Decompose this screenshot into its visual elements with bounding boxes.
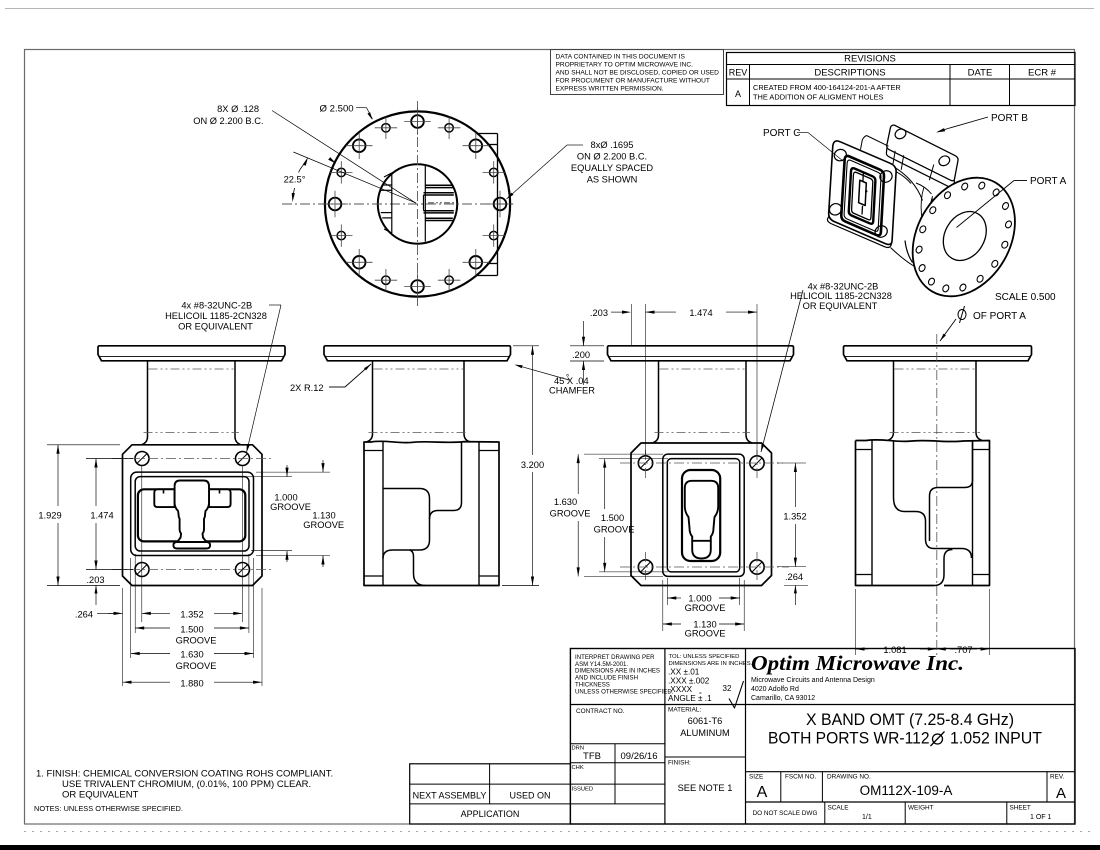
svg-text:REV.: REV. — [1050, 774, 1065, 781]
svg-text:HELICOIL 1185-2CN328: HELICOIL 1185-2CN328 — [790, 291, 892, 301]
svg-text:1.880: 1.880 — [180, 678, 203, 688]
svg-text:GROOVE: GROOVE — [594, 525, 635, 535]
svg-text:ANGLE ± .1: ANGLE ± .1 — [668, 694, 712, 703]
svg-text:EXPRESS WRITTEN PERMISSION.: EXPRESS WRITTEN PERMISSION. — [556, 86, 664, 93]
svg-text:Camarillo, CA 93012: Camarillo, CA 93012 — [751, 695, 815, 702]
svg-text:HELICOIL 1185-2CN328: HELICOIL 1185-2CN328 — [165, 311, 267, 321]
svg-text:1. FINISH: CHEMICAL CONVERSIO: 1. FINISH: CHEMICAL CONVERSION COATING R… — [36, 769, 333, 780]
svg-text:TOL: UNLESS SPECIFIED: TOL: UNLESS SPECIFIED — [669, 654, 740, 660]
svg-text:6061-T6: 6061-T6 — [688, 716, 723, 726]
svg-text:.XX ±.01: .XX ±.01 — [668, 668, 700, 677]
svg-text:45 X .04: 45 X .04 — [554, 376, 589, 386]
svg-text:8xØ .1695: 8xØ .1695 — [591, 140, 634, 150]
svg-text:SCALE 0.500: SCALE 0.500 — [995, 292, 1056, 303]
svg-text:09/26/16: 09/26/16 — [621, 751, 658, 762]
svg-text:GROOVE: GROOVE — [270, 502, 311, 512]
svg-text:1/1: 1/1 — [862, 814, 872, 821]
svg-text:1.352: 1.352 — [180, 610, 203, 620]
svg-text:1 OF 1: 1 OF 1 — [1030, 814, 1052, 821]
svg-text:.203: .203 — [86, 575, 104, 585]
svg-text:1.052 INPUT: 1.052 INPUT — [950, 730, 1042, 748]
svg-text:GROOVE: GROOVE — [685, 603, 726, 613]
svg-text:.203: .203 — [590, 308, 608, 318]
svg-text:ASM Y14.5M-2001.: ASM Y14.5M-2001. — [575, 661, 628, 668]
svg-text:1.500: 1.500 — [180, 624, 203, 634]
svg-text:Optim Microwave Inc.: Optim Microwave Inc. — [751, 651, 964, 675]
svg-text:.200: .200 — [572, 350, 590, 360]
svg-text:THE ADDITION OF ALIGMENT HOLES: THE ADDITION OF ALIGMENT HOLES — [753, 93, 884, 102]
svg-text:WEIGHT: WEIGHT — [908, 805, 934, 812]
svg-text:ECR #: ECR # — [1028, 68, 1057, 79]
svg-text:PORT B: PORT B — [991, 113, 1028, 124]
svg-text:OR EQUIVALENT: OR EQUIVALENT — [178, 321, 253, 331]
svg-text:1.130: 1.130 — [312, 510, 335, 520]
svg-text:ISSUED: ISSUED — [572, 787, 594, 793]
svg-text:4x #8-32UNC-2B: 4x #8-32UNC-2B — [181, 300, 252, 310]
svg-text:NEXT ASSEMBLY: NEXT ASSEMBLY — [413, 791, 487, 801]
svg-text:THICKNESS: THICKNESS — [575, 682, 610, 689]
svg-text:GROOVE: GROOVE — [685, 629, 726, 639]
svg-text:DESCRIPTIONS: DESCRIPTIONS — [814, 68, 885, 79]
svg-text:REV: REV — [729, 68, 748, 78]
svg-text:°: ° — [566, 373, 569, 382]
svg-text:APPLICATION: APPLICATION — [461, 809, 520, 819]
svg-text:2X R.12: 2X R.12 — [290, 383, 324, 393]
svg-text:1.081: 1.081 — [883, 645, 906, 655]
svg-text:.XXXX: .XXXX — [668, 685, 693, 694]
svg-text:DATA CONTAINED IN THIS DOCUMEN: DATA CONTAINED IN THIS DOCUMENT IS — [556, 54, 686, 61]
svg-text:4020 Adolfo Rd: 4020 Adolfo Rd — [751, 686, 799, 693]
svg-text:.264: .264 — [785, 572, 803, 582]
svg-text:PORT A: PORT A — [1030, 176, 1067, 187]
svg-text:.707: .707 — [954, 645, 972, 655]
svg-text:8X Ø .128: 8X Ø .128 — [217, 104, 259, 114]
svg-text:FSCM NO.: FSCM NO. — [785, 774, 816, 781]
svg-text:AND INCLUDE FINISH: AND INCLUDE FINISH — [575, 675, 638, 682]
svg-text:PORT C: PORT C — [763, 128, 800, 139]
svg-text:DIMENSIONS ARE IN INCHES.: DIMENSIONS ARE IN INCHES. — [669, 661, 753, 667]
svg-text:1.474: 1.474 — [689, 308, 712, 318]
svg-text:CONTRACT NO.: CONTRACT NO. — [576, 708, 625, 715]
svg-text:OF PORT A: OF PORT A — [973, 311, 1026, 322]
svg-text:OR EQUIVALENT: OR EQUIVALENT — [62, 790, 139, 801]
svg-text:Microwave Circuits and Antenna: Microwave Circuits and Antenna Design — [751, 677, 875, 684]
svg-text:FOR PROCUMENT OR MANUFACTURE W: FOR PROCUMENT OR MANUFACTURE WITHOUT — [556, 78, 710, 85]
svg-text:SEE NOTE 1: SEE NOTE 1 — [678, 783, 733, 793]
svg-text:REVISIONS: REVISIONS — [844, 54, 896, 65]
svg-text:A: A — [735, 89, 741, 99]
svg-text:FINISH:: FINISH: — [668, 760, 691, 767]
svg-text:OR EQUIVALENT: OR EQUIVALENT — [803, 301, 878, 311]
svg-text:GROOVE: GROOVE — [550, 509, 591, 519]
svg-text:1.630: 1.630 — [180, 650, 203, 660]
svg-text:ALUMINUM: ALUMINUM — [680, 728, 730, 738]
svg-text:EQUALLY SPACED: EQUALLY SPACED — [571, 163, 653, 173]
svg-text:DIMENSIONS ARE IN INCHES: DIMENSIONS ARE IN INCHES — [575, 668, 660, 675]
svg-text:SHEET: SHEET — [1010, 805, 1031, 812]
svg-text:1.352: 1.352 — [783, 512, 806, 522]
svg-text:32: 32 — [723, 684, 732, 693]
svg-text:GROOVE: GROOVE — [176, 636, 217, 646]
svg-text:4x #8-32UNC-2B: 4x #8-32UNC-2B — [808, 282, 879, 292]
svg-text:NOTES: UNLESS OTHERWISE SPECIF: NOTES: UNLESS OTHERWISE SPECIFIED. — [34, 804, 183, 813]
svg-text:A: A — [757, 784, 768, 801]
svg-text:1.929: 1.929 — [38, 511, 61, 521]
svg-text:SIZE: SIZE — [749, 774, 763, 781]
svg-text:PROPRIETARY TO OPTIM MICROWAVE: PROPRIETARY TO OPTIM MICROWAVE INC. — [556, 62, 694, 69]
svg-text:22.5°: 22.5° — [284, 174, 306, 184]
svg-text:°: ° — [699, 691, 702, 699]
svg-text:1.500: 1.500 — [601, 513, 624, 523]
svg-text:USE TRIVALENT CHROMIUM, (0.01%: USE TRIVALENT CHROMIUM, (0.01%, 100 PPM)… — [62, 779, 311, 790]
svg-text:INTERPRET DRAWING PER: INTERPRET DRAWING PER — [575, 654, 655, 661]
svg-text:TFB: TFB — [583, 751, 601, 762]
svg-text:SCALE: SCALE — [828, 805, 849, 812]
svg-text:3.200: 3.200 — [521, 460, 544, 470]
svg-text:MATERIAL:: MATERIAL: — [668, 707, 701, 714]
svg-text:CHK: CHK — [572, 765, 584, 771]
svg-text:DO NOT SCALE DWG: DO NOT SCALE DWG — [753, 810, 818, 817]
svg-text:CHAMFER: CHAMFER — [549, 386, 595, 396]
svg-text:AND SHALL NOT BE DISCLOSED, CO: AND SHALL NOT BE DISCLOSED, COPIED OR US… — [556, 70, 720, 77]
svg-text:BOTH PORTS WR-112: BOTH PORTS WR-112 — [768, 730, 930, 748]
svg-text:1.474: 1.474 — [90, 511, 113, 521]
svg-text:.264: .264 — [75, 610, 93, 620]
svg-text:Ø 2.500: Ø 2.500 — [320, 104, 354, 115]
svg-text:DATE: DATE — [968, 68, 993, 79]
svg-text:X BAND OMT (7.25-8.4 GHz): X BAND OMT (7.25-8.4 GHz) — [806, 711, 1014, 729]
svg-text:DRAWING NO.: DRAWING NO. — [827, 774, 871, 781]
svg-text:GROOVE: GROOVE — [176, 661, 217, 671]
svg-text:A: A — [1056, 785, 1066, 802]
svg-text:USED ON: USED ON — [509, 791, 550, 801]
svg-text:1.630: 1.630 — [554, 497, 577, 507]
svg-text:CREATED FROM 400-164124-201-A: CREATED FROM 400-164124-201-A AFTER — [753, 83, 901, 92]
svg-text:GROOVE: GROOVE — [303, 520, 344, 530]
svg-text:AS SHOWN: AS SHOWN — [587, 175, 638, 185]
svg-text:ON Ø 2.200 B.C.: ON Ø 2.200 B.C. — [577, 152, 647, 162]
svg-text:UNLESS OTHERWISE SPECIFIED.: UNLESS OTHERWISE SPECIFIED. — [575, 689, 674, 696]
svg-text:OM112X-109-A: OM112X-109-A — [860, 783, 953, 798]
svg-text:ON Ø 2.200 B.C.: ON Ø 2.200 B.C. — [193, 116, 263, 126]
